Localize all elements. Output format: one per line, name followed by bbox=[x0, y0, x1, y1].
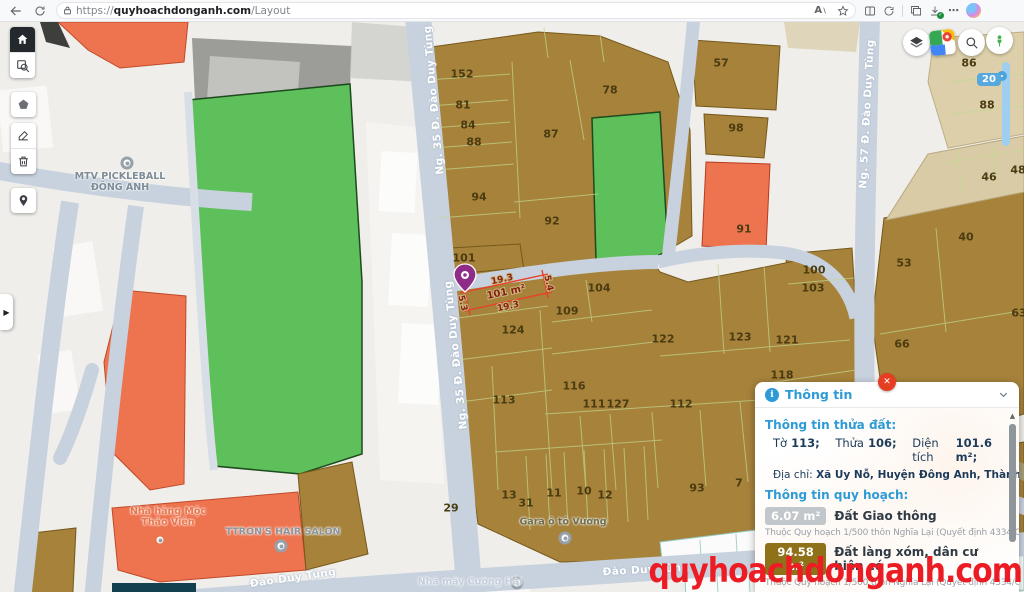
zoning-section-title: Thông tin quy hoạch: bbox=[765, 488, 1003, 502]
url-text: https://quyhoachdonganh.com/Layout bbox=[76, 5, 290, 17]
read-aloud-icon[interactable]: A∖ bbox=[814, 5, 827, 16]
browser-toolbar: https://quyhoachdonganh.com/Layout A∖ ✓ bbox=[0, 0, 1024, 22]
home-button[interactable] bbox=[10, 27, 35, 52]
area-zoom-button[interactable] bbox=[10, 53, 35, 78]
copilot-icon[interactable] bbox=[966, 3, 981, 18]
downloads-icon[interactable]: ✓ bbox=[929, 5, 941, 17]
street-view-button[interactable] bbox=[986, 27, 1013, 54]
map-tool-group-edit bbox=[11, 123, 36, 174]
back-icon[interactable] bbox=[4, 4, 28, 18]
polygon-tool-button[interactable] bbox=[11, 92, 36, 117]
toolbar-separator bbox=[902, 5, 903, 17]
info-icon: i bbox=[765, 388, 779, 402]
map-attribution-badge bbox=[112, 583, 196, 592]
zone-area-badge: 6.07 m² bbox=[765, 507, 826, 525]
address-bar[interactable]: https://quyhoachdonganh.com/Layout A∖ bbox=[56, 2, 856, 19]
zone-note: Thuộc Quy hoạch 1/500 thôn Nghĩa Lại (Qu… bbox=[765, 528, 1003, 538]
map-canvas[interactable]: 19.3 101 m² 19.3 5.4 5.3 Ng. 35 Đ. Đào D… bbox=[0, 22, 1024, 592]
lock-icon bbox=[63, 5, 72, 16]
download-done-badge: ✓ bbox=[937, 12, 944, 19]
browser-window: https://quyhoachdonganh.com/Layout A∖ ✓ bbox=[0, 0, 1024, 592]
collections-icon[interactable] bbox=[910, 5, 922, 17]
browser-actions: ✓ ⋯ bbox=[864, 3, 981, 18]
more-dots-icon[interactable]: ⋯ bbox=[948, 4, 959, 17]
marker-tool-button[interactable] bbox=[11, 188, 36, 213]
search-button[interactable] bbox=[958, 29, 985, 56]
zone-name: Đất Giao thông bbox=[834, 509, 936, 523]
site-watermark: quyhoachdonganh.com bbox=[648, 552, 1022, 591]
delete-button[interactable] bbox=[11, 149, 36, 174]
scroll-up-icon[interactable]: ▲ bbox=[1008, 412, 1017, 420]
map-tool-group-home bbox=[10, 27, 35, 78]
zoom-level-badge: 20 bbox=[977, 73, 1001, 86]
chevron-down-icon[interactable] bbox=[998, 385, 1009, 404]
split-screen-icon[interactable] bbox=[864, 5, 876, 17]
google-maps-button[interactable] bbox=[929, 29, 956, 56]
close-icon[interactable]: ✕ bbox=[878, 373, 896, 391]
address-line: Địa chỉ: Xã Uy Nỗ, Huyện Đông Anh, Thành… bbox=[765, 469, 1003, 481]
edit-button[interactable] bbox=[11, 123, 36, 148]
plot-section-title: Thông tin thửa đất: bbox=[765, 418, 1003, 432]
refresh-icon[interactable] bbox=[28, 5, 52, 17]
zoning-row: 6.07 m²Đất Giao thông bbox=[765, 507, 1003, 525]
favorite-star-icon[interactable] bbox=[837, 5, 849, 17]
layers-button[interactable] bbox=[903, 29, 930, 56]
sidebar-expander[interactable]: ▶ bbox=[0, 294, 13, 330]
scrollbar-thumb[interactable] bbox=[1009, 424, 1016, 542]
refresh-circle-icon[interactable] bbox=[883, 5, 895, 17]
panel-title: Thông tin bbox=[785, 387, 852, 402]
plot-info-line: Tờ113; Thửa106; Diện tích101.6 m²; bbox=[765, 436, 1003, 464]
